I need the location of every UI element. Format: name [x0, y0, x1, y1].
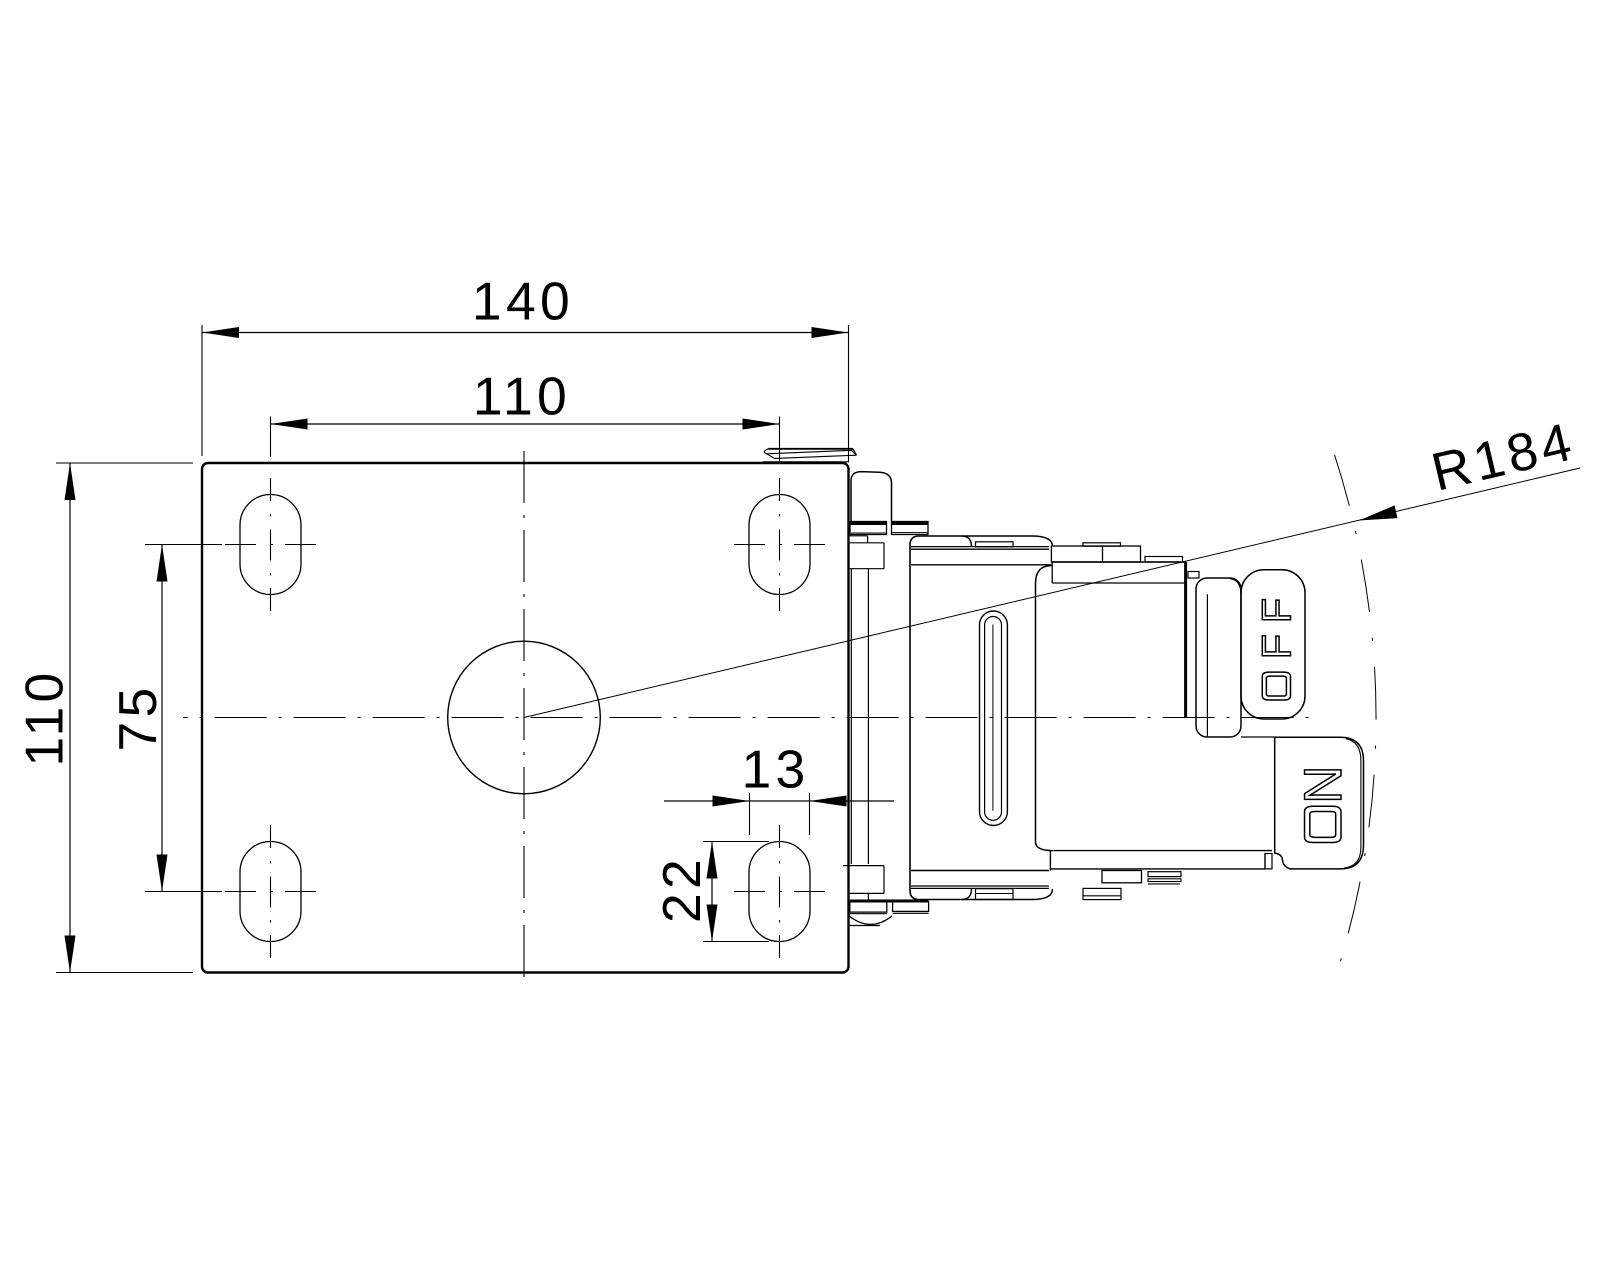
svg-text:75: 75 — [109, 683, 168, 751]
svg-text:22: 22 — [653, 855, 712, 923]
svg-text:110: 110 — [473, 368, 571, 427]
svg-text:110: 110 — [16, 668, 75, 766]
svg-text:140: 140 — [472, 273, 574, 332]
svg-text:13: 13 — [741, 741, 809, 800]
